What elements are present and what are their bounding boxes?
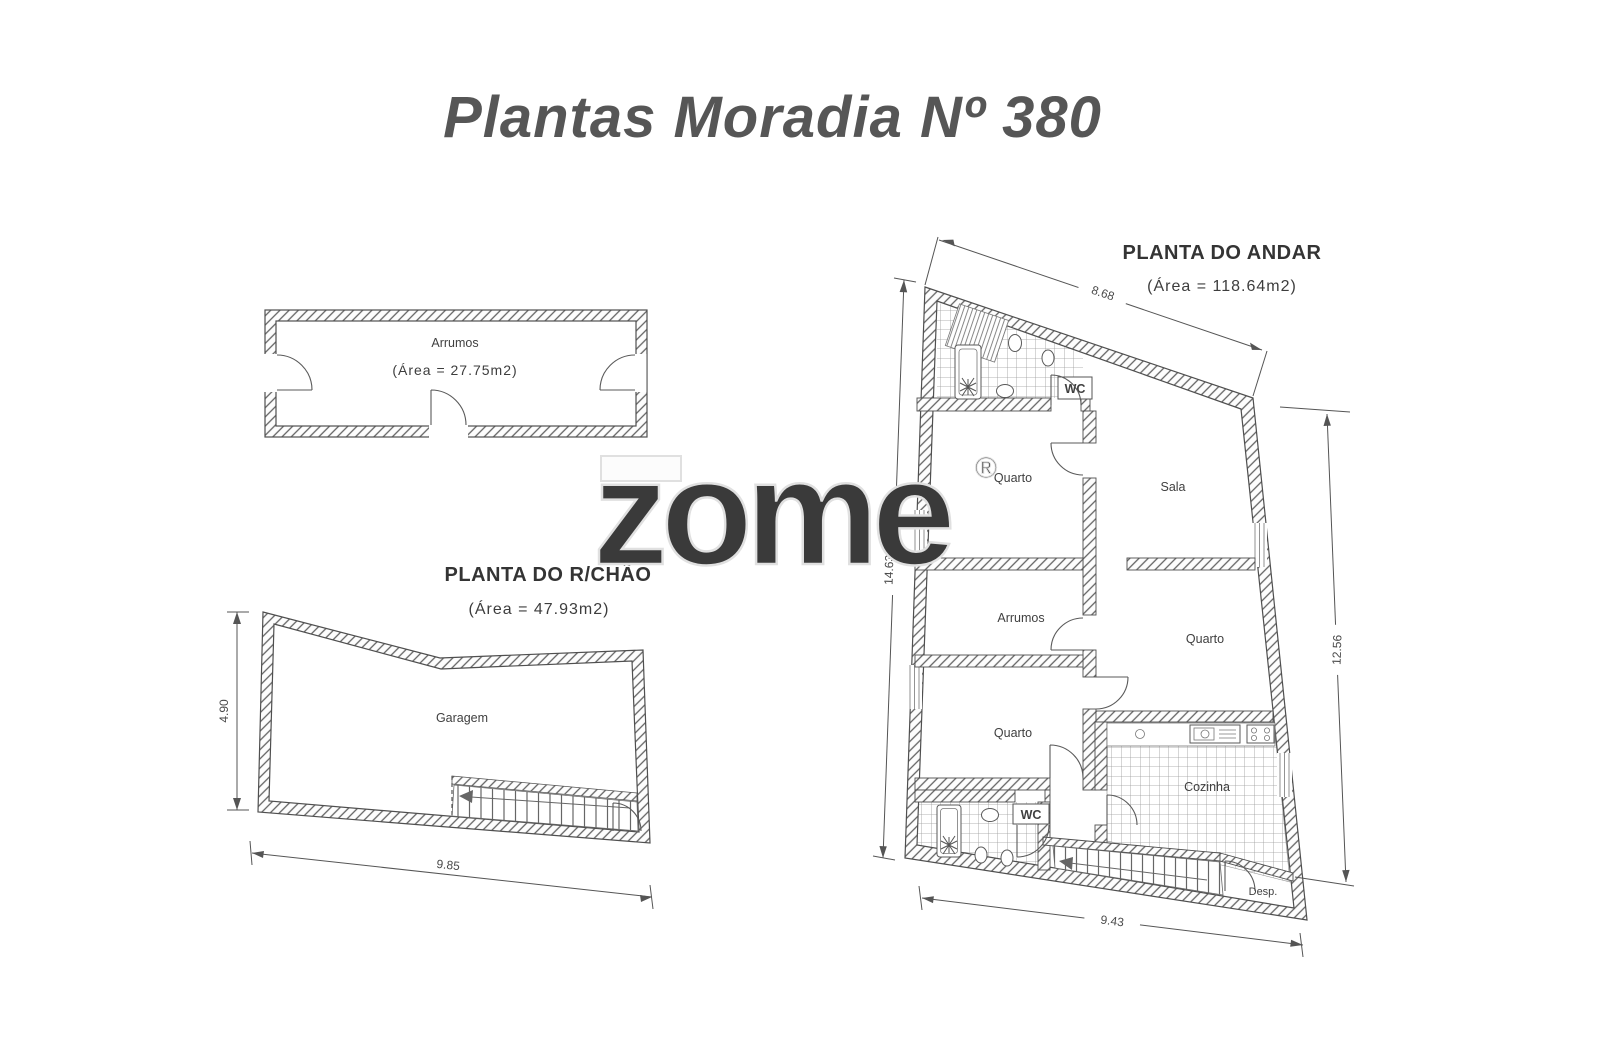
despensa-label: Desp.	[1249, 886, 1278, 898]
floor-plan-sheet: Plantas Moradia Nº 380	[0, 0, 1600, 1062]
quarto-right-label: Quarto	[1186, 632, 1224, 646]
arrumos-label: Arrumos	[997, 611, 1044, 625]
garagem-room-label: Garagem	[436, 711, 488, 725]
bidet-icon	[1001, 850, 1013, 866]
dimension-bottom-label: 9.85	[436, 857, 461, 874]
quarto-mid-left-label: Quarto	[994, 726, 1032, 740]
watermark-logo-bar	[601, 456, 681, 481]
door-opening	[633, 354, 647, 392]
ground-floor-plan: PLANTA DO R/CHÃO (Área = 47.93m2) Garage…	[215, 545, 675, 910]
upper-floor-area-label: (Área = 118.64m2)	[1147, 276, 1297, 295]
ground-floor-area-label: (Área = 47.93m2)	[469, 599, 610, 618]
dimension-bottom-label: 9.43	[1100, 913, 1125, 930]
sink-icon	[982, 809, 999, 822]
upper-floor-plan: PLANTA DO ANDAR (Área = 118.64m2)	[855, 225, 1355, 1015]
quarto-top-left-label: Quarto	[994, 471, 1032, 485]
dimension-left-label: 14.63	[881, 554, 896, 585]
stove-icon	[1247, 725, 1274, 743]
upper-floor-title: PLANTA DO ANDAR	[1123, 242, 1322, 264]
sala-label: Sala	[1160, 480, 1185, 494]
toilet-icon	[1009, 335, 1022, 352]
dimension-right-label: 12.56	[1329, 634, 1344, 665]
sink-icon	[997, 385, 1014, 398]
dimension-bottom: 9.43	[919, 886, 1303, 957]
kitchen-counter	[1107, 723, 1275, 746]
ground-floor-title: PLANTA DO R/CHÃO	[445, 563, 652, 586]
page-title: Plantas Moradia Nº 380	[0, 84, 1545, 151]
annex-area-label: (Área = 27.75m2)	[392, 362, 517, 378]
dimension-left-label: 4.90	[217, 699, 231, 723]
kitchen-sink-icon	[1190, 725, 1240, 743]
door-opening	[429, 424, 468, 438]
dimension-top-label: 8.68	[1090, 283, 1117, 304]
door-opening	[264, 354, 278, 392]
wc-top-label: WC	[1065, 382, 1086, 396]
wc-bottom-label: WC	[1021, 808, 1042, 822]
cozinha-label: Cozinha	[1184, 780, 1230, 794]
annex-plan: Arrumos (Área = 27.75m2)	[255, 297, 655, 447]
bidet-icon	[1042, 350, 1054, 366]
dimension-left: 4.90	[217, 612, 249, 810]
annex-room-label: Arrumos	[431, 336, 478, 350]
toilet-icon	[975, 847, 987, 863]
dimension-bottom: 9.85	[250, 841, 653, 909]
